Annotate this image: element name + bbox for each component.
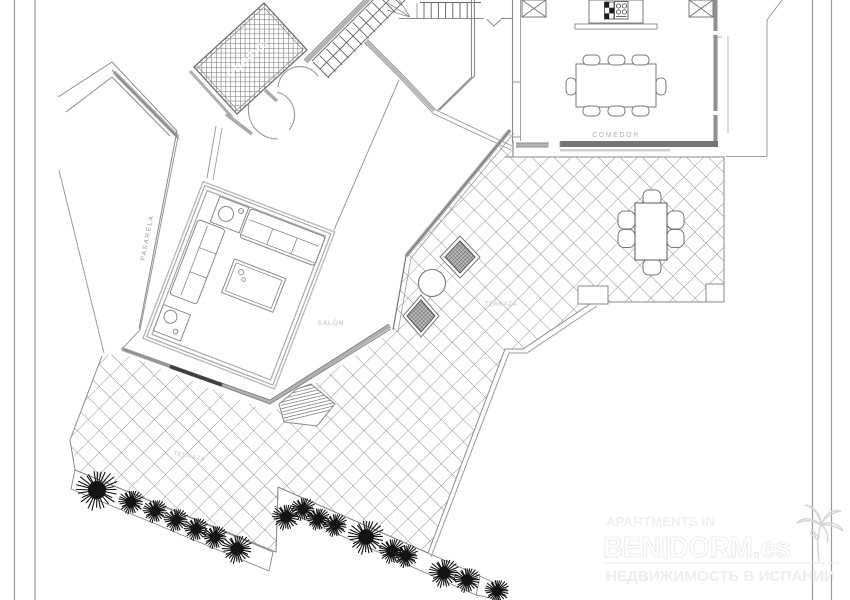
- svg-text:SALÓN: SALÓN: [317, 318, 344, 327]
- svg-text:COMEDOR: COMEDOR: [592, 132, 640, 139]
- svg-text:BENIDORM.es: BENIDORM.es: [603, 532, 791, 564]
- svg-text:НЕДВИЖИМОСТЬ В ИСПАНИИ: НЕДВИЖИМОСТЬ В ИСПАНИИ: [606, 568, 835, 585]
- svg-text:TERRAZA: TERRAZA: [485, 302, 517, 308]
- svg-text:APARTMENTS IN: APARTMENTS IN: [606, 514, 715, 529]
